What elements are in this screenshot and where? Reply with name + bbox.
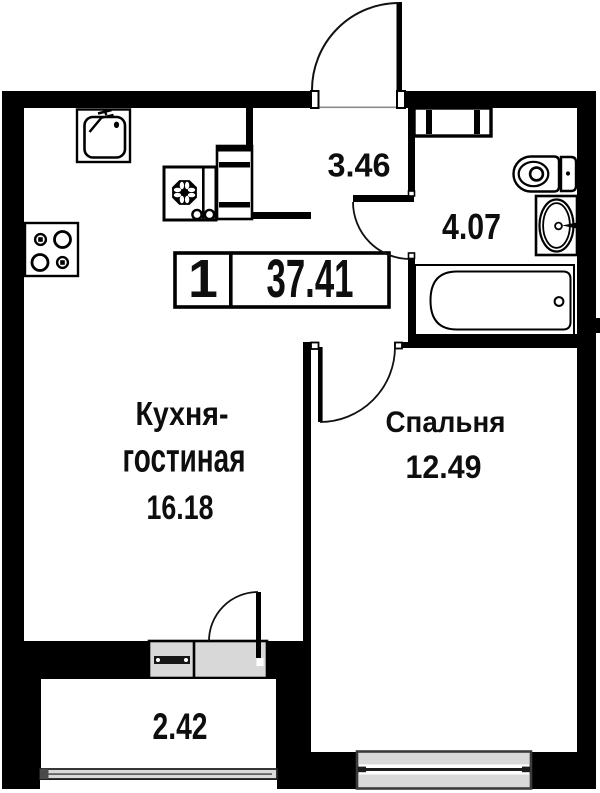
svg-text:4.07: 4.07 <box>442 206 501 247</box>
svg-text:1: 1 <box>188 250 218 309</box>
svg-text:Кухня-: Кухня- <box>136 395 229 432</box>
svg-text:гостиная: гостиная <box>123 437 246 481</box>
svg-text:2.42: 2.42 <box>153 706 208 747</box>
svg-text:16.18: 16.18 <box>147 489 214 527</box>
svg-text:Спальня: Спальня <box>386 406 506 439</box>
svg-text:12.49: 12.49 <box>406 449 482 485</box>
svg-text:3.46: 3.46 <box>328 148 391 185</box>
svg-text:37.41: 37.41 <box>267 250 354 309</box>
